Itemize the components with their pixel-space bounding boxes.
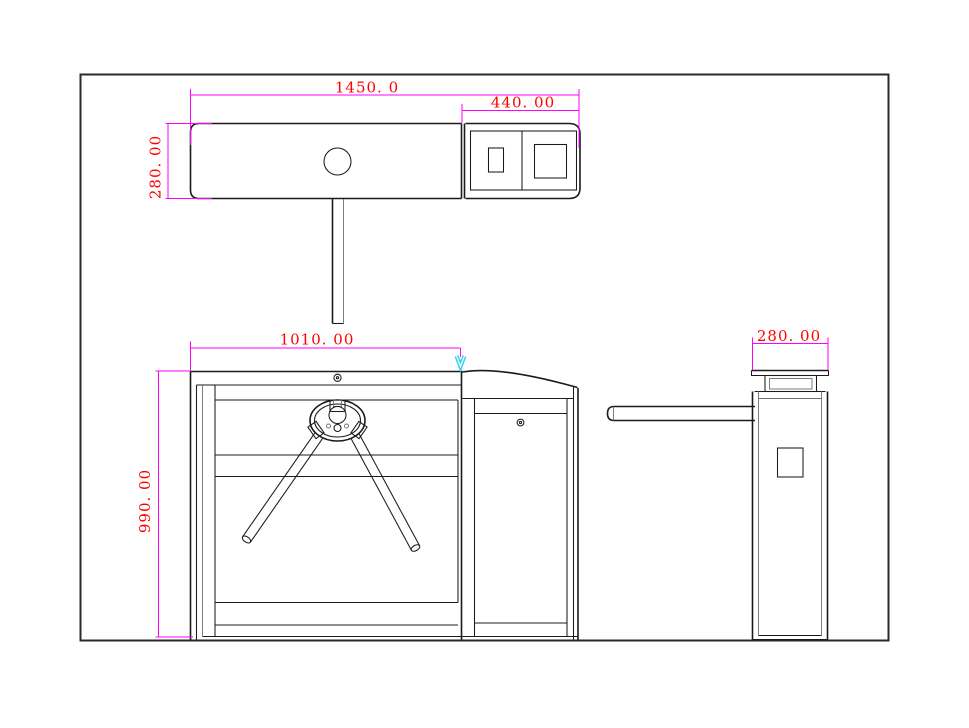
side-reader-panel xyxy=(778,448,804,477)
left-arm-edge-1 xyxy=(250,439,322,543)
dim-top-total-length-label: 1450. 0 xyxy=(335,79,399,97)
front-tripod-arms xyxy=(241,433,421,552)
hub-forward-arm-boss xyxy=(329,407,346,424)
side-arm xyxy=(608,407,756,421)
top-view xyxy=(191,124,581,324)
side-display-window xyxy=(770,379,813,390)
dim-side-depth: 280. 00 xyxy=(753,327,829,370)
dim-side-depth-label: 280. 00 xyxy=(757,327,821,345)
dim-front-width-label: 1010. 00 xyxy=(280,331,355,349)
side-view xyxy=(608,371,829,640)
front-end-cap xyxy=(463,370,579,639)
top-view-head-inner-panel xyxy=(471,131,577,190)
end-cap-keyhole-icon xyxy=(517,419,524,426)
top-view-reader-window-large xyxy=(535,145,567,179)
dim-top-head-length: 440. 00 xyxy=(462,94,579,124)
end-cap-keyhole-center xyxy=(519,421,521,423)
top-view-reader-window-small xyxy=(489,148,504,172)
dim-front-height: 990. 00 xyxy=(136,371,193,637)
dim-top-total-length: 1450. 0 xyxy=(191,79,580,149)
front-lid-keyhole-center xyxy=(336,377,338,379)
top-view-main-housing xyxy=(191,124,462,199)
front-tripod-hub xyxy=(308,400,367,441)
dim-top-head-length-label: 440. 00 xyxy=(491,94,555,112)
hub-center-pin xyxy=(334,425,341,432)
dim-front-height-label: 990. 00 xyxy=(136,469,154,533)
hub-detail-left xyxy=(327,424,331,428)
front-lid-keyhole-icon xyxy=(334,374,341,381)
top-view-head-unit xyxy=(466,124,581,199)
hub-inner-ring xyxy=(315,404,361,437)
turnstile-engineering-drawing: 1450. 0 440. 00 280. 00 xyxy=(0,0,969,728)
end-cap-curved-top xyxy=(463,370,578,387)
drawing-canvas: 1450. 0 440. 00 280. 00 xyxy=(0,0,969,728)
hub-detail-right xyxy=(345,424,349,428)
left-arm-end-cap xyxy=(241,535,252,545)
right-arm-end-cap xyxy=(410,543,421,552)
dim-front-width: 1010. 00 xyxy=(191,331,466,372)
dim-top-depth: 280. 00 xyxy=(147,124,213,200)
right-arm-edge-1 xyxy=(359,434,420,546)
drawing-border-frame xyxy=(81,75,889,641)
left-arm-edge-2 xyxy=(243,433,315,537)
top-view-rotor-circle xyxy=(324,148,351,175)
front-view xyxy=(191,370,579,640)
dim-top-depth-label: 280. 00 xyxy=(147,135,165,199)
